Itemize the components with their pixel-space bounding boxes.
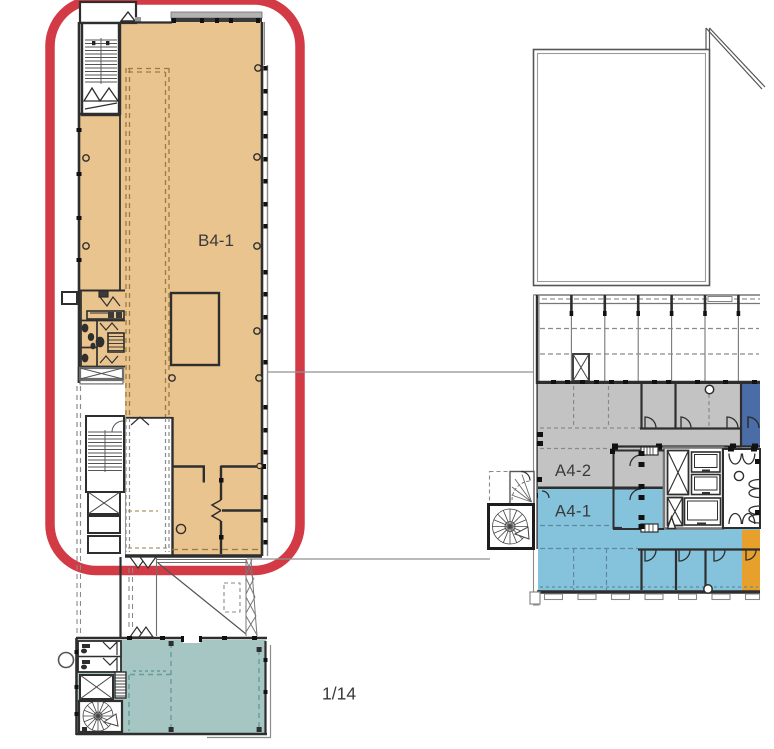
svg-text:1/14: 1/14 <box>322 684 356 704</box>
svg-text:A4-2: A4-2 <box>555 462 591 480</box>
svg-text:B4-1: B4-1 <box>198 231 234 250</box>
svg-text:A4-1: A4-1 <box>555 503 591 521</box>
